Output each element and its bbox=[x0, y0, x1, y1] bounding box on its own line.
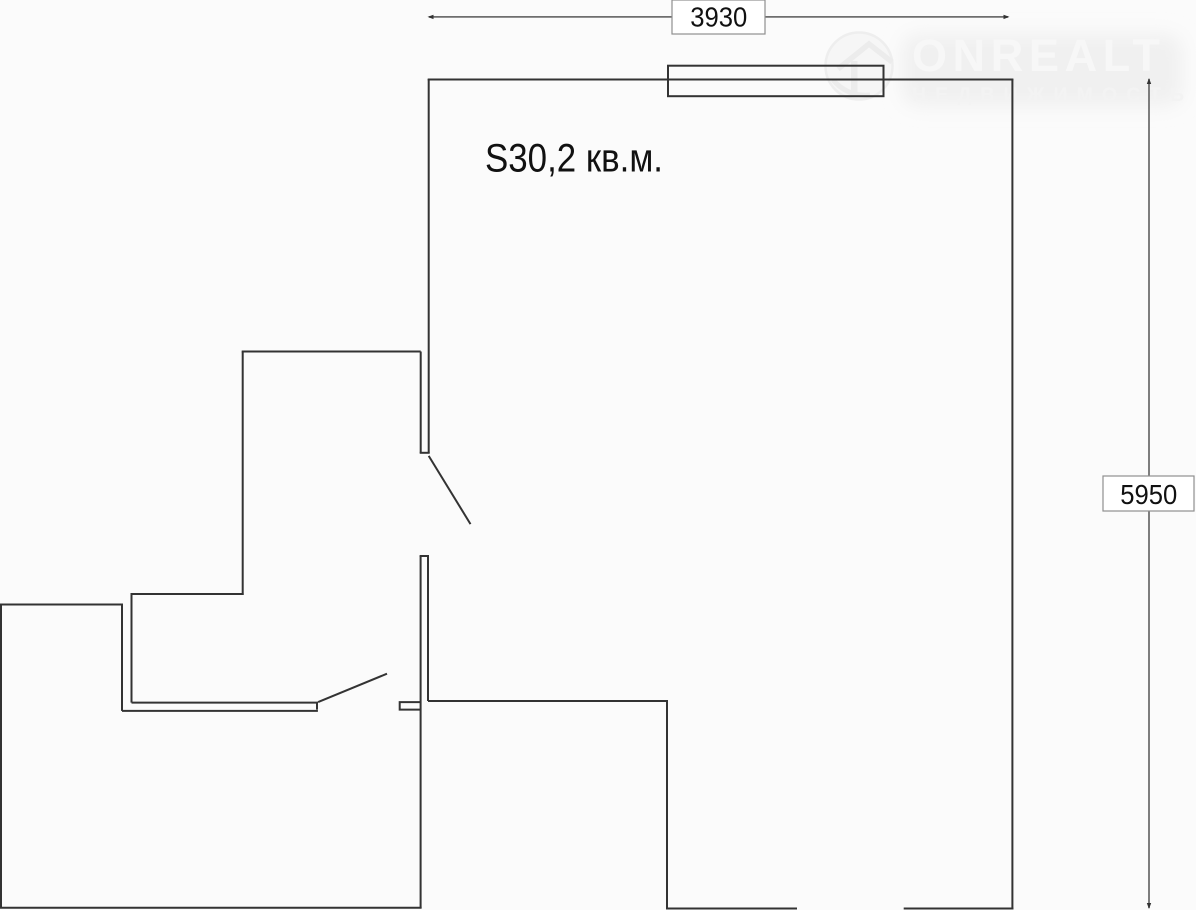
svg-text:3930: 3930 bbox=[690, 2, 747, 33]
svg-text:5950: 5950 bbox=[1120, 479, 1177, 510]
svg-text:S30,2 кв.м.: S30,2 кв.м. bbox=[485, 136, 663, 180]
